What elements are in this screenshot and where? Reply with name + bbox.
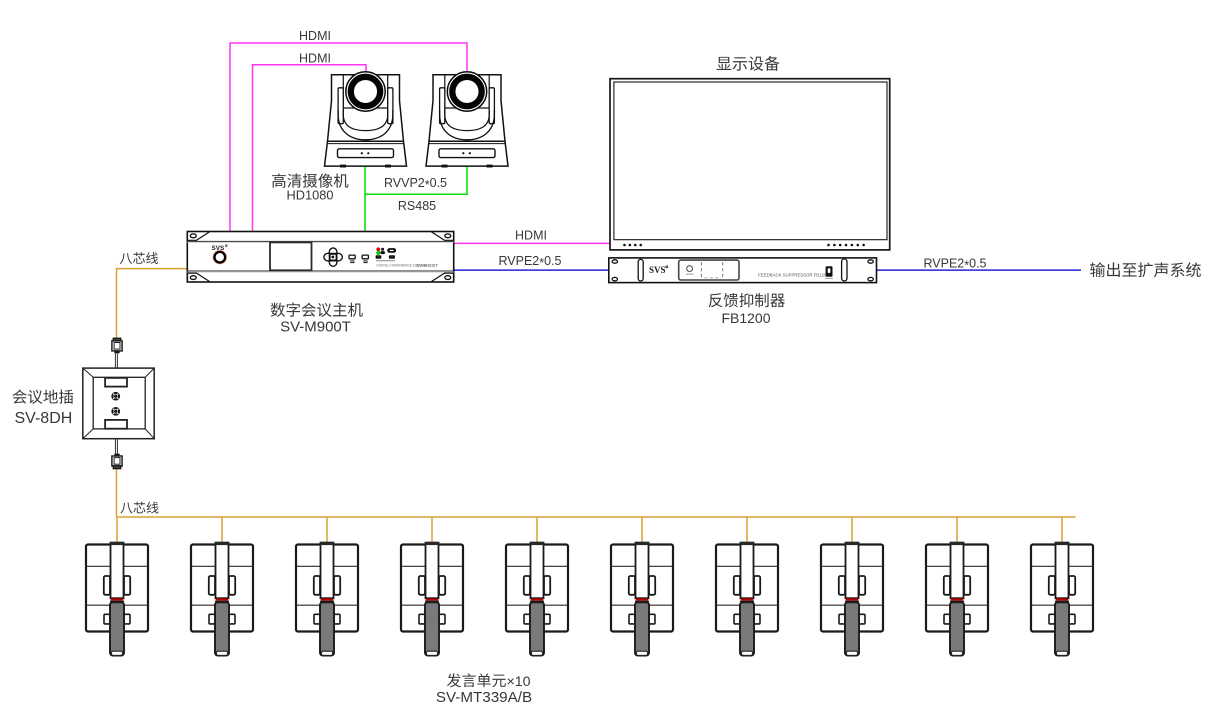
svg-text:RVPE2*0.5: RVPE2*0.5 (498, 254, 561, 270)
svg-text:SV-M900T: SV-M900T (416, 263, 438, 268)
svg-text:RVPE2*0.5: RVPE2*0.5 (923, 256, 986, 272)
svg-text:HDMI: HDMI (299, 52, 331, 66)
svg-text:SV-MT339A/B: SV-MT339A/B (436, 689, 532, 706)
svg-text:SV-M900T: SV-M900T (280, 319, 351, 336)
svg-text:×10: ×10 (507, 674, 531, 690)
svg-text:HDMI: HDMI (299, 29, 331, 43)
svg-text:SV-8DH: SV-8DH (15, 410, 73, 427)
svg-text:SVS: SVS (649, 265, 666, 275)
svg-text:RVVP2*0.5: RVVP2*0.5 (384, 176, 447, 192)
svg-text:FB1200: FB1200 (721, 310, 770, 326)
svg-text:HDMI: HDMI (515, 229, 547, 243)
svg-text:HD1080: HD1080 (287, 188, 334, 203)
svg-text:FEEDBACK SUPPRESSOR FB1200: FEEDBACK SUPPRESSOR FB1200 (758, 272, 829, 277)
svg-text:RS485: RS485 (398, 199, 436, 213)
